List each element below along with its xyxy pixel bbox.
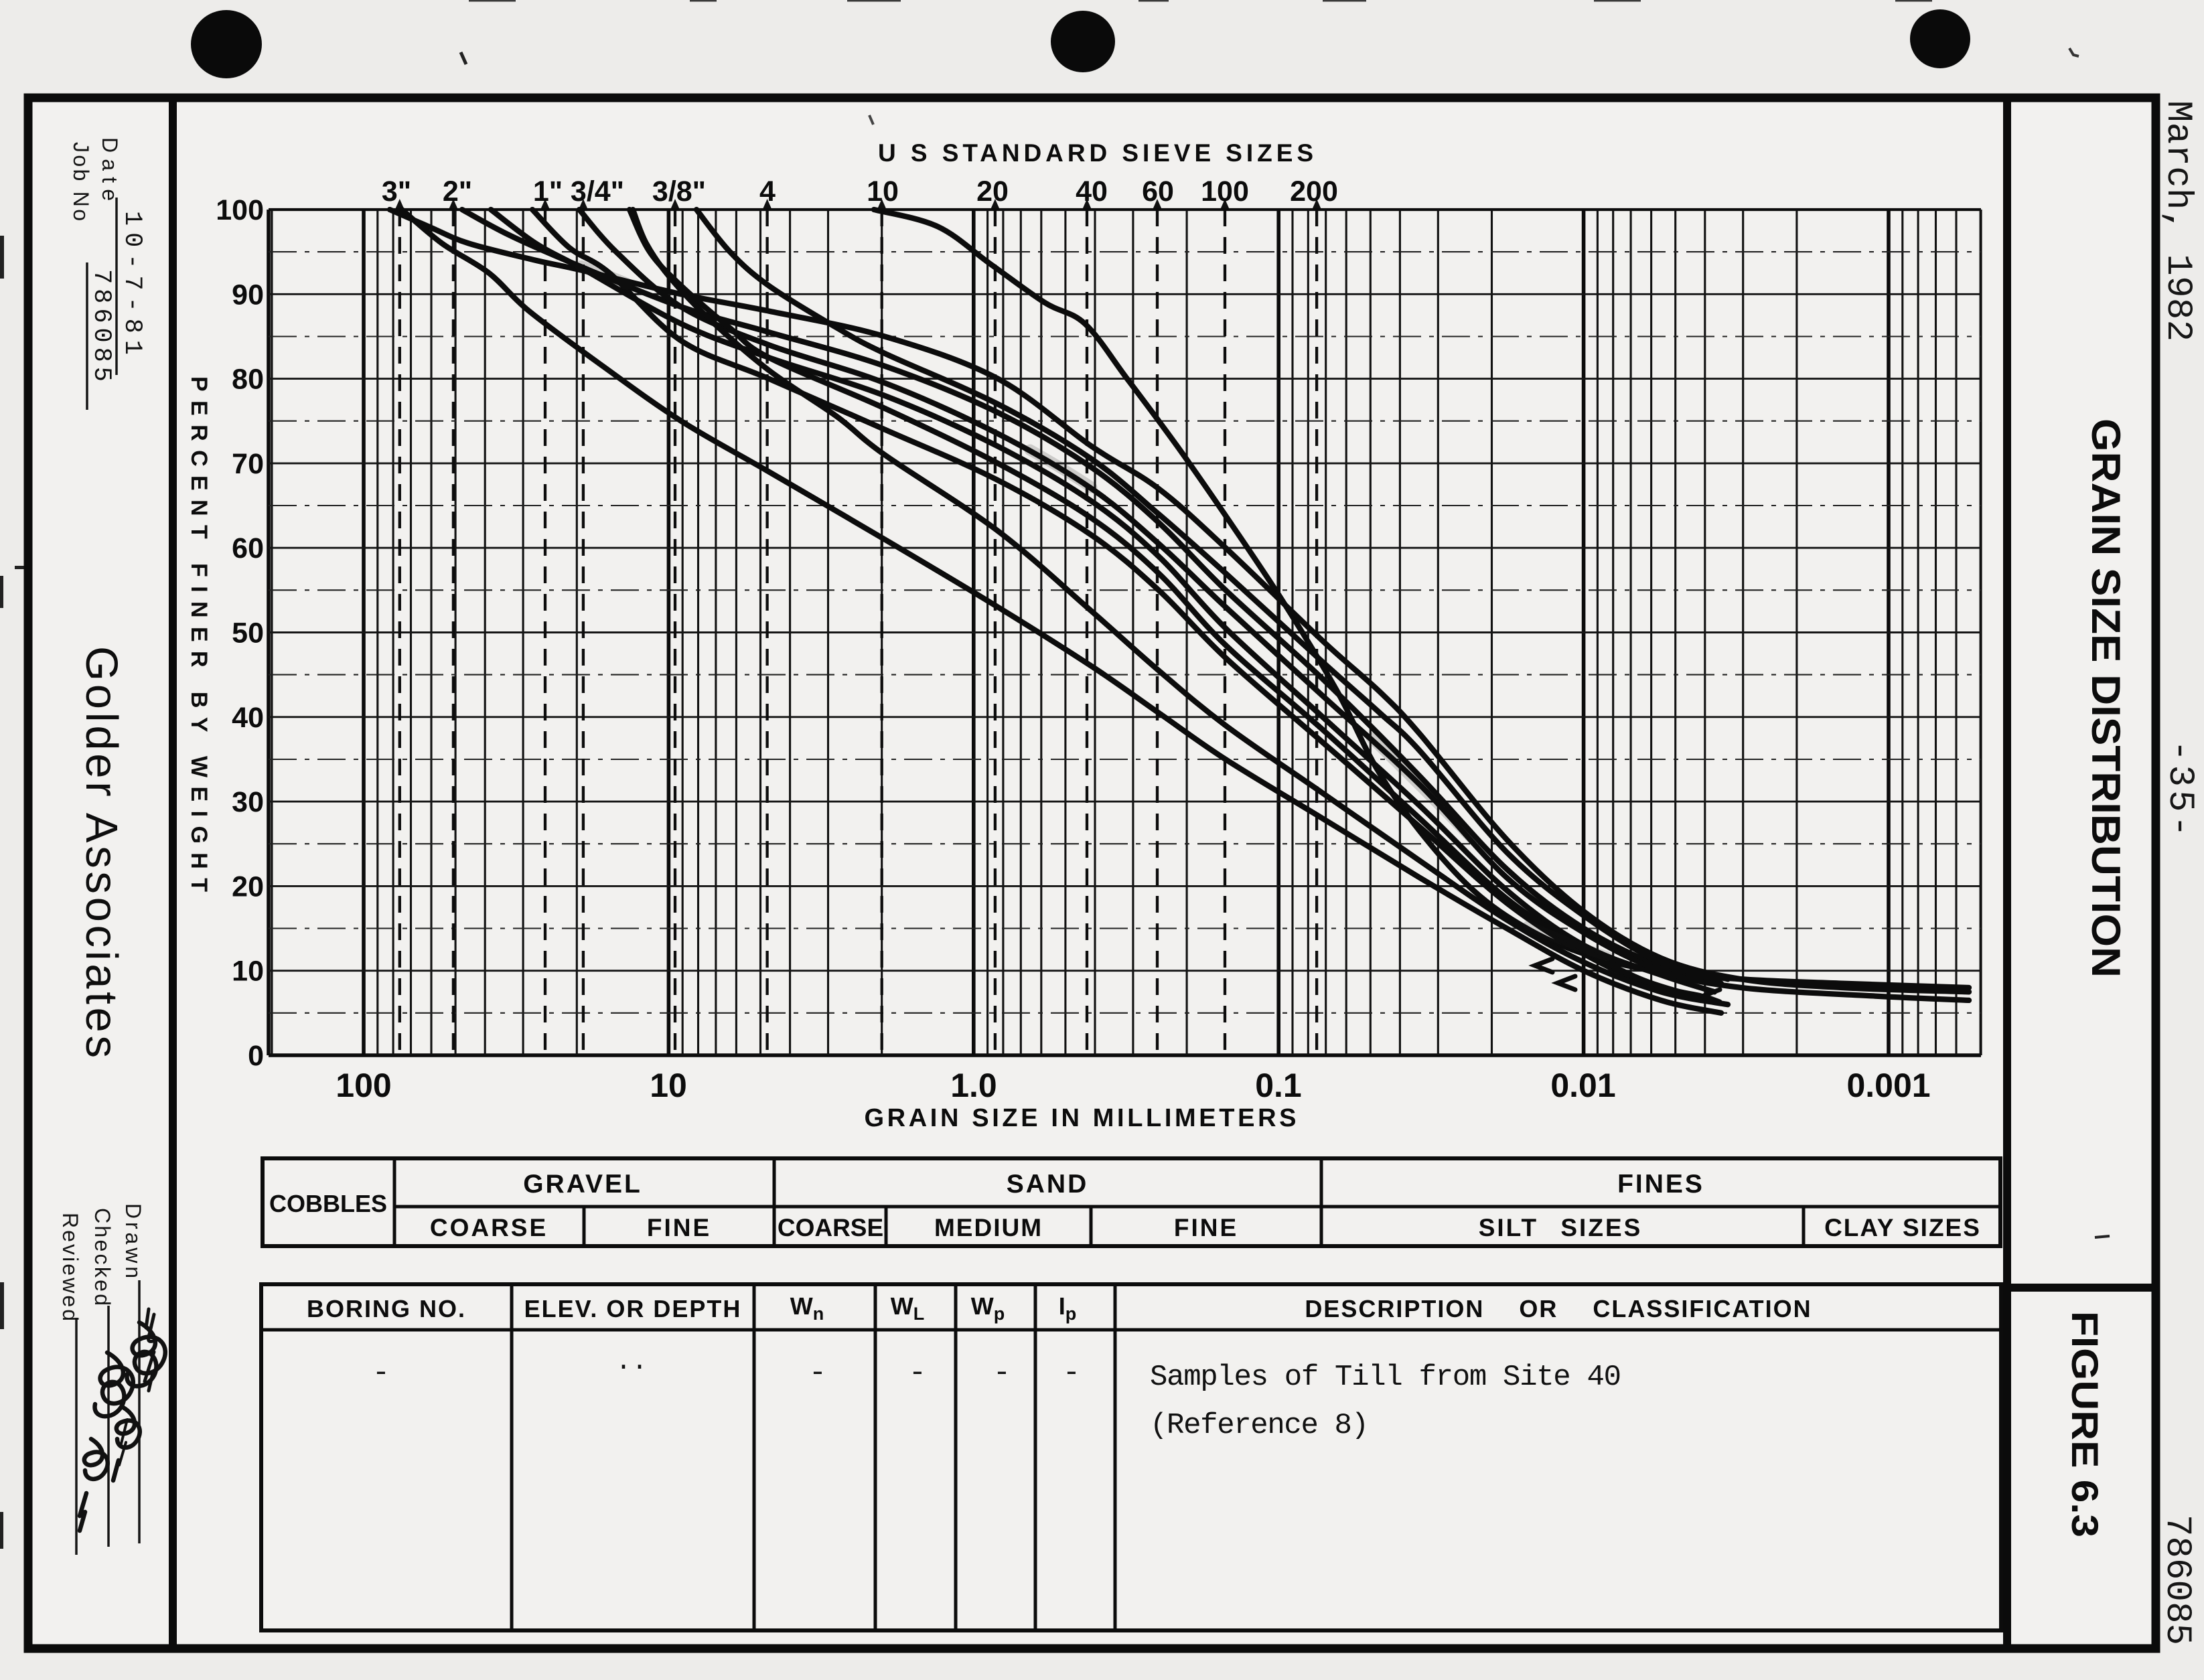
svg-text:Drawn: Drawn [121,1203,145,1278]
svg-text:50: 50 [232,617,264,650]
svg-text:0.001: 0.001 [1846,1067,1930,1104]
svg-text:70: 70 [232,448,264,480]
svg-text:SAND: SAND [1007,1170,1089,1199]
svg-text:FINE: FINE [647,1214,711,1241]
svg-text:-: - [993,1357,1011,1390]
svg-text:0: 0 [248,1040,264,1072]
svg-text:(Reference 8): (Reference 8) [1150,1409,1369,1442]
svg-text:10-7-81: 10-7-81 [118,211,146,355]
svg-text:March, 1982: March, 1982 [2157,100,2198,341]
svg-text:DESCRIPTION OR CLASSIFICAT: DESCRIPTION OR CLASSIFICATION [1305,1295,1812,1322]
svg-text:GRAIN SIZE DISTRIBUTION: GRAIN SIZE DISTRIBUTION [2083,418,2128,978]
svg-text:100: 100 [1201,175,1249,208]
svg-text:10: 10 [650,1067,687,1104]
svg-text:3": 3" [382,175,411,208]
svg-text:FIGURE 6.3: FIGURE 6.3 [2064,1311,2106,1537]
svg-text:COBBLES: COBBLES [269,1190,387,1217]
svg-text:100: 100 [216,194,264,226]
svg-text:Date: Date [98,137,122,201]
svg-text:COARSE: COARSE [430,1214,548,1241]
svg-text:-: - [372,1357,390,1390]
svg-text:CLAY SIZES: CLAY SIZES [1824,1214,1981,1241]
svg-text:-: - [809,1357,826,1390]
svg-text:Golder Associates: Golder Associates [76,646,127,1058]
svg-text:Samples of Till from Site 40: Samples of Till from Site 40 [1150,1361,1621,1394]
svg-text:4: 4 [759,175,776,208]
svg-text:3/8": 3/8" [652,175,706,208]
svg-text:FINES: FINES [1617,1170,1704,1199]
svg-text:60: 60 [1142,175,1174,208]
svg-text:20: 20 [232,870,264,903]
svg-text:-: - [1063,1357,1080,1390]
svg-text:ELEV. OR DEPTH: ELEV. OR DEPTH [524,1295,742,1322]
svg-text:U S STANDARD SIEVE SIZES: U S STANDARD SIEVE SIZES [878,139,1313,167]
svg-text:MEDIUM: MEDIUM [934,1214,1043,1241]
svg-text:3/4": 3/4" [571,175,624,208]
svg-text:200: 200 [1290,175,1338,208]
svg-text:100: 100 [336,1067,391,1104]
svg-text:1": 1" [533,175,563,208]
svg-text:FINE: FINE [1174,1214,1238,1241]
svg-text:0.1: 0.1 [1255,1067,1302,1104]
svg-text:80: 80 [232,364,264,396]
svg-text:40: 40 [1076,175,1108,208]
svg-text:-: - [909,1357,926,1390]
svg-text:Checked: Checked [90,1208,115,1306]
svg-text:20: 20 [976,175,1009,208]
svg-text:1.0: 1.0 [950,1067,997,1104]
svg-text:40: 40 [232,702,264,734]
svg-text:786085: 786085 [2156,1515,2197,1645]
svg-text:COARSE: COARSE [778,1214,883,1241]
svg-text:60: 60 [232,532,264,564]
svg-text:10: 10 [867,175,899,208]
svg-text:2": 2" [443,175,472,208]
svg-text:10: 10 [232,956,264,988]
svg-text:SILT SIZES: SILT SIZES [1479,1214,1643,1241]
svg-text:BORING NO.: BORING NO. [307,1295,466,1322]
svg-text:··: ·· [615,1353,648,1383]
svg-text:30: 30 [232,786,264,818]
svg-text:PERCENT FINER BY WEIGHT: PERCENT FINER BY WEIGHT [186,376,212,892]
svg-text:GRAVEL: GRAVEL [523,1170,642,1199]
svg-text:0.01: 0.01 [1550,1067,1615,1104]
svg-text:90: 90 [232,279,264,311]
